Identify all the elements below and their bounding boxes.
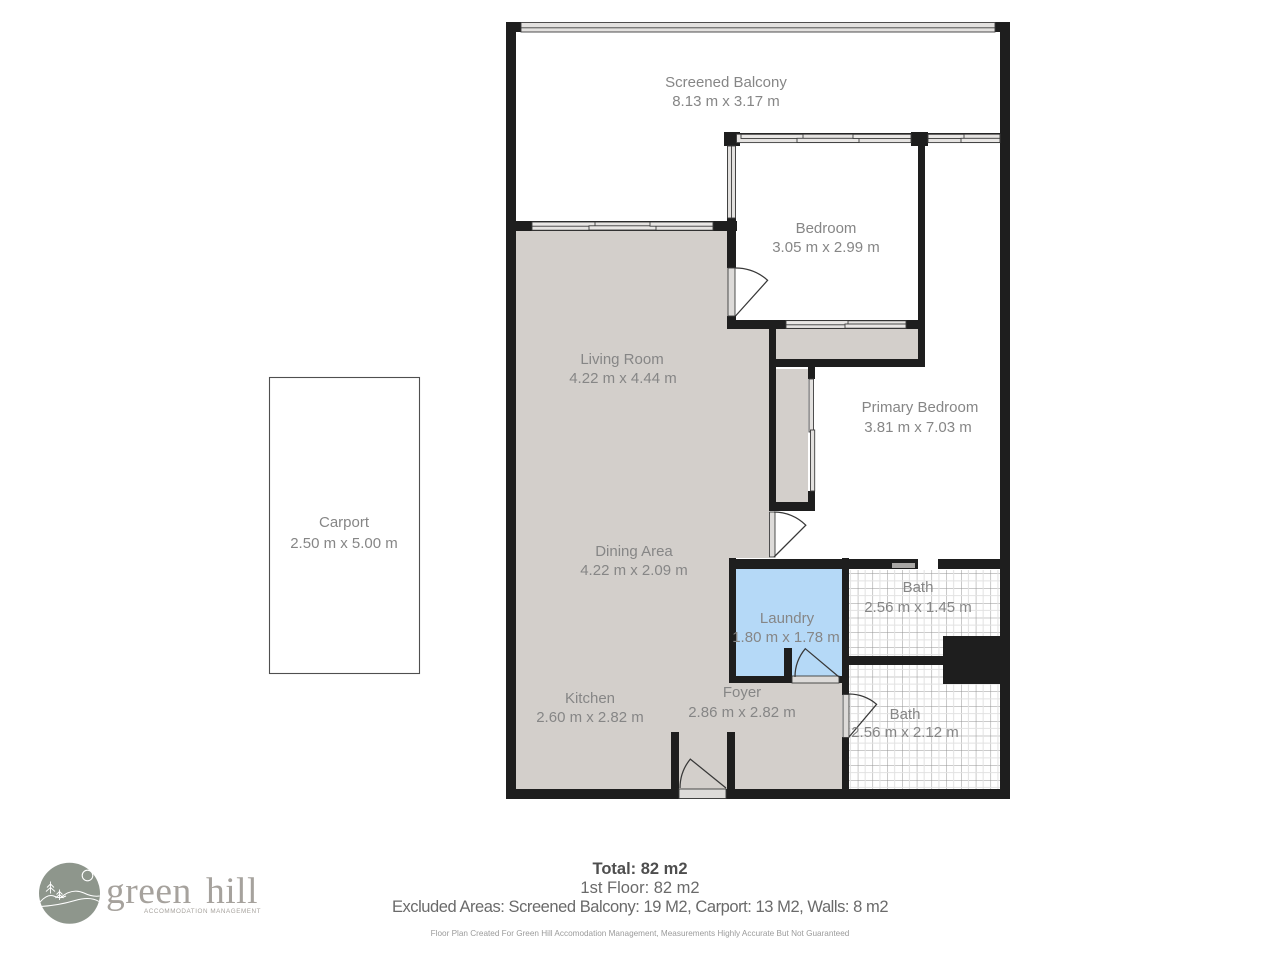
svg-text:2.56 m x 1.45 m: 2.56 m x 1.45 m <box>864 599 972 616</box>
svg-text:4.22 m x 4.44 m: 4.22 m x 4.44 m <box>569 370 677 387</box>
svg-text:Bedroom: Bedroom <box>796 220 857 237</box>
svg-text:3.05 m x 2.99 m: 3.05 m x 2.99 m <box>772 239 880 256</box>
svg-text:2.56 m x 2.12 m: 2.56 m x 2.12 m <box>851 724 959 741</box>
svg-text:Excluded Areas: Screened Balco: Excluded Areas: Screened Balcony: 19 M2,… <box>392 898 888 916</box>
svg-text:ACCOMMODATION MANAGEMENT: ACCOMMODATION MANAGEMENT <box>144 908 261 915</box>
svg-text:Living Room: Living Room <box>580 351 663 368</box>
svg-text:Foyer: Foyer <box>723 684 761 701</box>
svg-text:Laundry: Laundry <box>760 610 815 627</box>
svg-text:2.86 m x 2.82 m: 2.86 m x 2.82 m <box>688 704 796 721</box>
svg-text:Bath: Bath <box>890 706 921 723</box>
svg-text:8.13 m x 3.17 m: 8.13 m x 3.17 m <box>672 93 780 110</box>
svg-text:Bath: Bath <box>903 579 934 596</box>
svg-text:Floor Plan Created For Green H: Floor Plan Created For Green Hill Accomo… <box>431 929 850 938</box>
svg-text:green: green <box>106 871 192 912</box>
svg-text:Kitchen: Kitchen <box>565 690 615 707</box>
svg-text:Carport: Carport <box>319 514 370 531</box>
svg-text:1.80 m x 1.78 m: 1.80 m x 1.78 m <box>732 629 840 646</box>
svg-text:Screened Balcony: Screened Balcony <box>665 74 787 91</box>
svg-text:Dining Area: Dining Area <box>595 543 673 560</box>
svg-text:3.81 m x 7.03 m: 3.81 m x 7.03 m <box>864 419 972 436</box>
svg-text:Primary Bedroom: Primary Bedroom <box>862 399 979 416</box>
svg-text:hill: hill <box>206 871 258 912</box>
svg-text:2.50 m x 5.00 m: 2.50 m x 5.00 m <box>290 535 398 552</box>
svg-text:Total: 82 m2: Total: 82 m2 <box>592 860 687 878</box>
svg-text:1st Floor: 82 m2: 1st Floor: 82 m2 <box>580 879 699 897</box>
svg-text:2.60 m x 2.82 m: 2.60 m x 2.82 m <box>536 709 644 726</box>
svg-text:4.22 m x 2.09 m: 4.22 m x 2.09 m <box>580 562 688 579</box>
